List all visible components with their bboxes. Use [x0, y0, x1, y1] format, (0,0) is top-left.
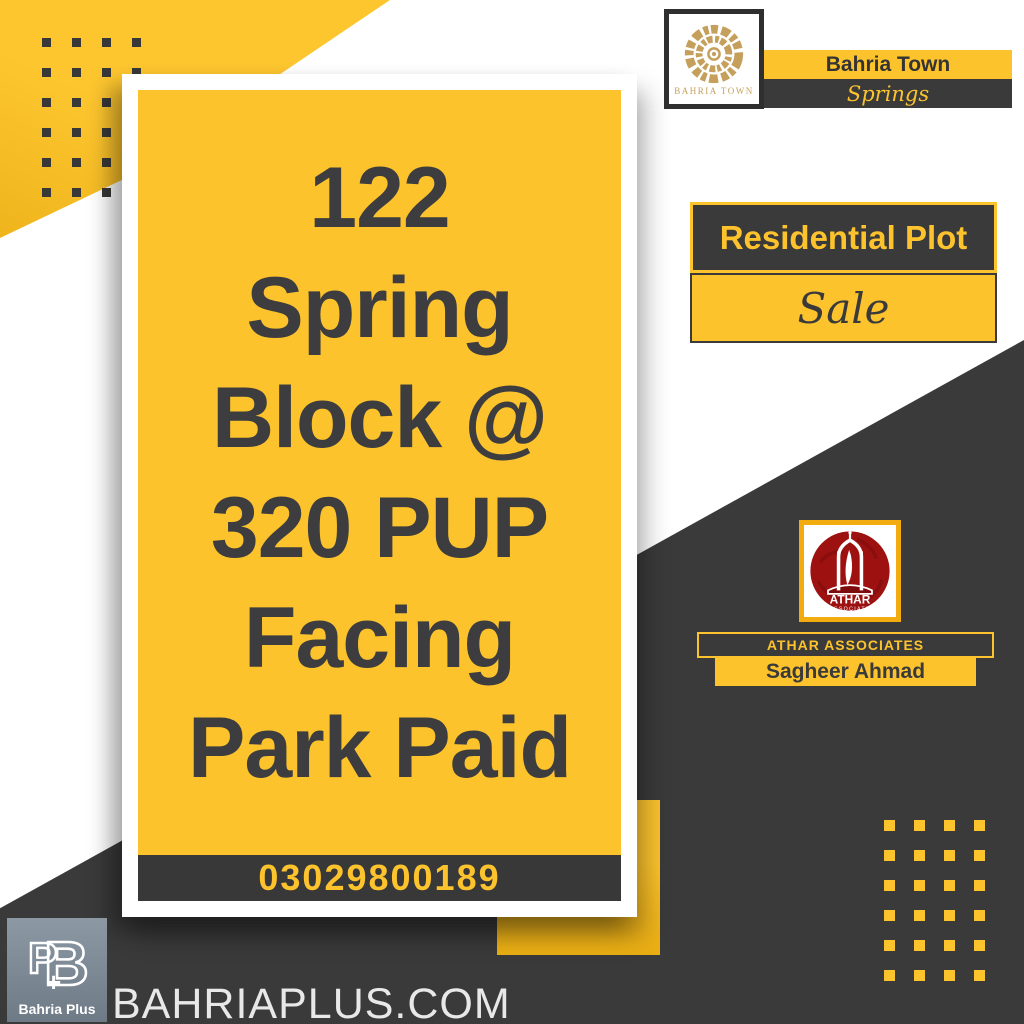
dot [944, 940, 955, 951]
dot [944, 880, 955, 891]
dot [42, 38, 51, 47]
monogram-plus: + [46, 967, 61, 997]
dot [102, 38, 111, 47]
dot [974, 970, 985, 981]
athar-emblem-icon: ATHAR ASSOCIATE [806, 527, 894, 615]
dot [72, 128, 81, 137]
agent-name: Sagheer Ahmad [766, 660, 925, 684]
dot [72, 68, 81, 77]
dot [974, 910, 985, 921]
dot [102, 188, 111, 197]
website-text: BAHRIAPLUS.COM [112, 980, 511, 1024]
athar-associates-logo: ATHAR ASSOCIATE [799, 520, 901, 622]
dot [914, 970, 925, 981]
dot [72, 38, 81, 47]
community-name: Springs [847, 82, 929, 106]
dot [102, 68, 111, 77]
listing-card-body: 122 Spring Block @ 320 PUP Facing Park P… [138, 90, 621, 855]
agent-company-bar: ATHAR ASSOCIATES [697, 632, 994, 658]
dot [132, 38, 141, 47]
dot [72, 98, 81, 107]
dot [974, 820, 985, 831]
dot [914, 910, 925, 921]
headline-line: Spring [188, 253, 571, 363]
headline-line: Park Paid [188, 693, 571, 803]
headline-line: 320 PUP [188, 473, 571, 583]
agent-company-name: ATHAR ASSOCIATES [767, 637, 924, 653]
dot [914, 880, 925, 891]
community-name-bar: Springs [764, 79, 1012, 108]
bahria-plus-label: Bahria Plus [18, 1001, 95, 1017]
dot [884, 850, 895, 861]
dot [72, 158, 81, 167]
brand-name: Bahria Town [826, 53, 950, 77]
dot [102, 158, 111, 167]
dot [72, 188, 81, 197]
phone-number: 03029800189 [258, 857, 500, 899]
sale-label: Sale [797, 284, 889, 333]
dot [102, 98, 111, 107]
listing-card-inner: 122 Spring Block @ 320 PUP Facing Park P… [138, 90, 621, 901]
dot [102, 128, 111, 137]
listing-card: 122 Spring Block @ 320 PUP Facing Park P… [122, 74, 637, 917]
headline-line: 122 [188, 143, 571, 253]
dot [914, 820, 925, 831]
dot [884, 910, 895, 921]
dot [42, 158, 51, 167]
dot [42, 188, 51, 197]
phone-bar: 03029800189 [138, 855, 621, 901]
dot [42, 128, 51, 137]
dot [974, 880, 985, 891]
dot [944, 850, 955, 861]
dot [974, 850, 985, 861]
dot [944, 910, 955, 921]
dot [914, 850, 925, 861]
dot [944, 820, 955, 831]
dot [884, 970, 895, 981]
sale-badge: Sale [690, 273, 997, 343]
dot [884, 820, 895, 831]
brand-name-bar: Bahria Town [764, 50, 1012, 79]
dot [974, 940, 985, 951]
property-type-label: Residential Plot [720, 219, 968, 257]
bahria-town-emblem-icon [683, 23, 745, 85]
dot [884, 880, 895, 891]
dot [42, 98, 51, 107]
property-type-badge: Residential Plot [690, 202, 997, 273]
athar-logo-title: ATHAR [830, 593, 871, 607]
listing-headline: 122 Spring Block @ 320 PUP Facing Park P… [188, 143, 571, 803]
dot [884, 940, 895, 951]
bahria-plus-logo: B P + Bahria Plus [7, 918, 107, 1022]
dot [944, 970, 955, 981]
bahria-town-logo: BAHRIA TOWN [664, 9, 764, 109]
headline-line: Block @ [188, 363, 571, 473]
bottom-right-dot-grid [884, 820, 985, 981]
headline-line: Facing [188, 583, 571, 693]
bahria-town-logo-caption: BAHRIA TOWN [674, 86, 753, 96]
athar-logo-subtitle: ASSOCIATE [829, 607, 871, 613]
bahria-plus-monogram-icon: B P + [20, 927, 94, 1001]
dot [914, 940, 925, 951]
dot [42, 68, 51, 77]
agent-name-bar: Sagheer Ahmad [715, 658, 976, 686]
